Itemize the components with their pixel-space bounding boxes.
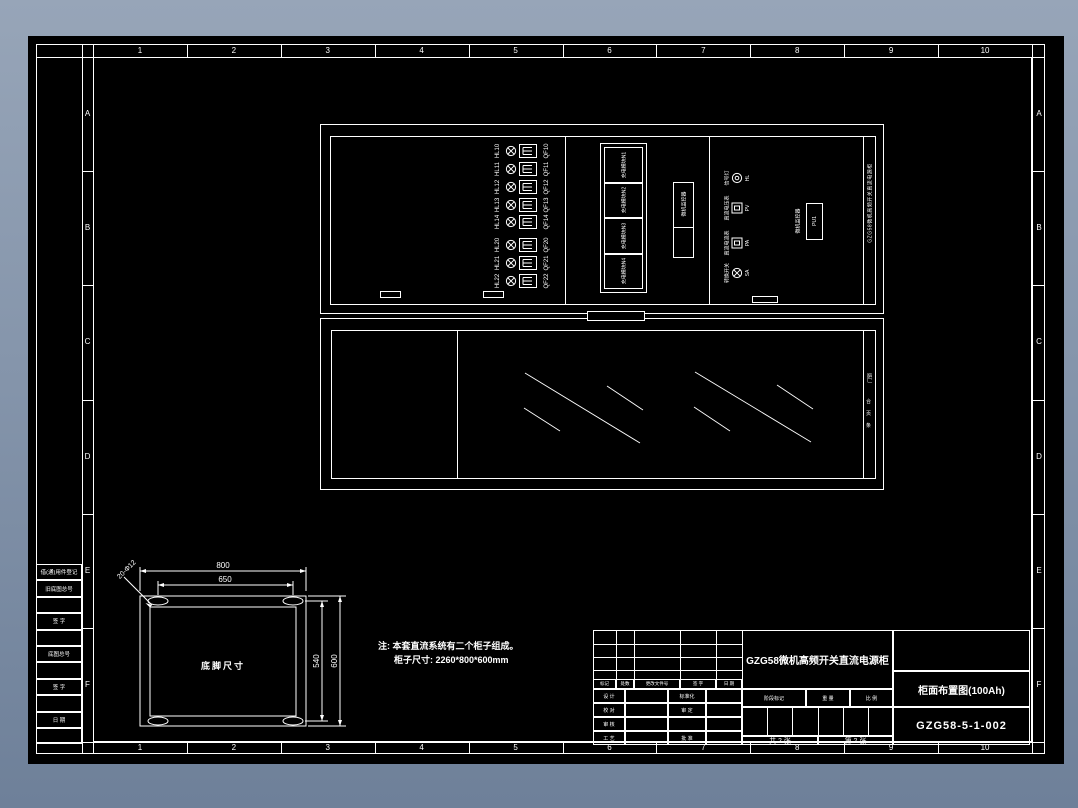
instrument-label: 直流电流表 xyxy=(724,230,731,255)
ruler-col-label-top: 6 xyxy=(563,44,657,57)
instrument-tag: HL xyxy=(745,175,751,181)
sign-blank-cell xyxy=(625,717,668,731)
lamp-icon xyxy=(505,199,517,211)
lamp-label: HL11 xyxy=(495,162,501,176)
margin-strip-row xyxy=(36,630,82,646)
svg-text:650: 650 xyxy=(218,575,232,584)
left-panel-handle-1 xyxy=(380,291,401,298)
margin-strip-row: 签 字 xyxy=(36,613,82,629)
drawing-title-cell: 柜面布置图(100Ah) xyxy=(893,671,1030,707)
breaker-icon xyxy=(519,162,537,176)
lamp-icon xyxy=(505,257,517,269)
revision-header-cell: 日 期 xyxy=(716,679,742,689)
meter-icon xyxy=(731,237,743,249)
tall-row xyxy=(742,707,893,736)
ruler-col-tick-top xyxy=(93,44,94,57)
revision-header-cell: 处数 xyxy=(616,679,634,689)
margin-strip-row xyxy=(36,597,82,613)
left-panel-handle-2 xyxy=(483,291,504,298)
ruler-col-tick-top xyxy=(1032,44,1033,57)
sign-mid-cell: 标准化 xyxy=(668,689,706,703)
breaker-label: QF12 xyxy=(544,179,550,194)
ruler-row-tick-right xyxy=(1032,742,1045,743)
lower-door-divider xyxy=(457,331,458,478)
svg-text:600: 600 xyxy=(330,654,339,668)
note-line-1: 注: 本套直流系统有二个柜子组成。 xyxy=(378,639,519,652)
ruler-col-tick-top xyxy=(938,44,939,57)
ruler-col-label-bottom: 5 xyxy=(469,742,563,754)
nameplate xyxy=(587,311,645,321)
ruler-col-tick-top xyxy=(187,44,188,57)
lamp-label: HL14 xyxy=(495,215,501,229)
breaker-label: QF10 xyxy=(544,143,550,158)
margin-strip-row xyxy=(36,662,82,678)
sign-role-cell: 审 核 xyxy=(593,717,625,731)
ruler-col-tick-top xyxy=(844,44,845,57)
margin-strip-row xyxy=(36,695,82,711)
lamp-icon xyxy=(505,239,517,251)
ruler-row-label-right: D xyxy=(1033,400,1045,514)
instrument-tag: SA xyxy=(745,270,751,277)
sign-mid-cell: 批 准 xyxy=(668,731,706,745)
ruler-row-tick-right xyxy=(1032,171,1045,172)
upper-divider-2 xyxy=(709,137,710,304)
ruler-row-label-right: F xyxy=(1033,628,1045,742)
door-side-mark: 合 xyxy=(866,398,871,405)
ruler-row-tick-left xyxy=(82,285,93,286)
ruler-col-tick-bottom xyxy=(1032,742,1033,754)
ruler-col-label-top: 7 xyxy=(656,44,750,57)
right-panel-handle xyxy=(752,296,778,303)
breaker-label: QF21 xyxy=(544,255,550,270)
revision-header-cell: 更改文件号 xyxy=(634,679,680,689)
ruler-col-tick-bottom xyxy=(93,742,94,754)
sign-blank-cell xyxy=(625,731,668,745)
sign-blank-cell xyxy=(625,689,668,703)
cad-viewport[interactable]: 1122334455667788991010AABBCCDDEEFF 借(通)用… xyxy=(0,0,1078,808)
ruler-row-tick-left xyxy=(82,57,93,58)
ruler-row-label-left: A xyxy=(82,57,93,171)
ruler-row-label-left: E xyxy=(82,514,93,628)
module-monitor-label: 微机监控器 xyxy=(680,191,687,216)
module-monitor-divider xyxy=(673,227,694,228)
sign-role-cell: 工 艺 xyxy=(593,731,625,745)
breaker-label: QF11 xyxy=(544,162,550,177)
breaker-label: QF14 xyxy=(544,214,550,229)
logo-cell xyxy=(893,630,1030,671)
indicator-lamp-icon xyxy=(731,172,743,184)
ruler-row-label-right: A xyxy=(1033,57,1045,171)
breaker-label: QF22 xyxy=(544,273,550,288)
ruler-col-tick-top xyxy=(750,44,751,57)
door-side-mark: 条 xyxy=(866,422,871,429)
cabinet-side-label: GZG58微机高频开关直流电源柜 xyxy=(866,163,873,242)
indicator-lamp-icon xyxy=(731,267,743,279)
ruler-col-tick-top xyxy=(281,44,282,57)
margin-strip-row: 签 字 xyxy=(36,679,82,695)
foot-detail-drawing: 800 650 540 600 20-Φ12 底脚尺寸 xyxy=(100,555,360,745)
instrument-label: 转换开关 xyxy=(724,263,731,283)
instrument-tag: PA xyxy=(745,240,751,246)
revision-divider xyxy=(716,630,717,679)
ruler-row-label-right: C xyxy=(1033,285,1045,399)
drawing-number-cell: GZG58-5-1-002 xyxy=(893,707,1030,745)
ruler-col-label-top: 3 xyxy=(281,44,375,57)
margin-strip-row: 借(通)用件登记 xyxy=(36,564,82,580)
ruler-row-tick-right xyxy=(1032,285,1045,286)
title-block: GZG58微机高频开关直流电源柜 阶段标记重 量比 例 共 2 张 第 2 张 … xyxy=(593,630,1030,745)
margin-strip-row: 底图总号 xyxy=(36,646,82,662)
breaker-icon xyxy=(519,215,537,229)
ruler-row-label-right: B xyxy=(1033,171,1045,285)
sign-blank-cell-2 xyxy=(706,689,742,703)
product-title-cell: GZG58微机高频开关直流电源柜 xyxy=(742,630,893,689)
ruler-col-label-top: 8 xyxy=(750,44,844,57)
revision-header-cell: 签 字 xyxy=(680,679,716,689)
ruler-row-label-left: B xyxy=(82,171,93,285)
stage-cell: 重 量 xyxy=(806,689,850,707)
glass-hatch xyxy=(460,330,880,479)
breaker-label: QF13 xyxy=(544,197,550,212)
lamp-label: HL20 xyxy=(495,238,501,252)
charge-module-label: 充电模块N2 xyxy=(620,187,627,213)
lamp-label: HL22 xyxy=(495,274,501,288)
svg-text:540: 540 xyxy=(312,654,321,668)
breaker-label: QF20 xyxy=(544,237,550,252)
ruler-col-label-bottom: 4 xyxy=(375,742,469,754)
top-band-line xyxy=(36,57,1045,58)
lamp-label: HL13 xyxy=(495,198,501,212)
sign-blank-cell xyxy=(625,703,668,717)
ruler-col-tick-top xyxy=(469,44,470,57)
breaker-icon xyxy=(519,180,537,194)
revision-divider xyxy=(634,630,635,679)
stage-cell: 阶段标记 xyxy=(742,689,806,707)
ruler-row-tick-left xyxy=(82,171,93,172)
ruler-col-label-top: 4 xyxy=(375,44,469,57)
breaker-icon xyxy=(519,198,537,212)
ruler-col-tick-top xyxy=(656,44,657,57)
sign-blank-cell-2 xyxy=(706,703,742,717)
instrument-label: 直流电压表 xyxy=(724,195,731,220)
svg-text:底脚尺寸: 底脚尺寸 xyxy=(201,660,245,671)
ruler-col-tick-bottom xyxy=(563,742,564,754)
lamp-label: HL12 xyxy=(495,180,501,194)
breaker-icon xyxy=(519,274,537,288)
lamp-icon xyxy=(505,275,517,287)
margin-strip-row: 日 期 xyxy=(36,712,82,728)
margin-strip-row: 旧底图总号 xyxy=(36,580,82,596)
door-side-word: 门锁 xyxy=(866,373,873,383)
foot-dimension-detail: 800 650 540 600 20-Φ12 底脚尺寸 xyxy=(100,555,360,745)
ruler-col-label-top: 1 xyxy=(93,44,187,57)
ruler-col-tick-bottom xyxy=(469,742,470,754)
lamp-label: HL10 xyxy=(495,144,501,158)
sign-mid-cell xyxy=(668,717,706,731)
ruler-row-tick-left xyxy=(82,400,93,401)
ruler-col-tick-top xyxy=(375,44,376,57)
stage-cell: 比 例 xyxy=(850,689,893,707)
ruler-row-tick-right xyxy=(1032,628,1045,629)
svg-text:20-Φ12: 20-Φ12 xyxy=(116,559,138,581)
ruler-row-label-left: C xyxy=(82,285,93,399)
ruler-row-tick-right xyxy=(1032,57,1045,58)
breaker-icon xyxy=(519,256,537,270)
svg-text:800: 800 xyxy=(216,561,230,570)
ruler-col-tick-top xyxy=(563,44,564,57)
instrument-label: 信号灯 xyxy=(724,170,731,185)
charge-module-label: 充电模块N3 xyxy=(620,223,627,249)
ruler-row-tick-right xyxy=(1032,400,1045,401)
sheet-count-cell: 共 2 张 xyxy=(742,736,818,745)
note-line-2: 柜子尺寸: 2260*800*600mm xyxy=(394,653,509,666)
lamp-icon xyxy=(505,181,517,193)
sign-role-cell: 设 计 xyxy=(593,689,625,703)
lamp-icon xyxy=(505,163,517,175)
lamp-label: HL21 xyxy=(495,256,501,270)
monitor-unit-tag: PU1 xyxy=(812,216,818,226)
sign-mid-cell: 审 定 xyxy=(668,703,706,717)
revision-divider xyxy=(616,630,617,679)
ruler-row-label-left: D xyxy=(82,400,93,514)
ruler-col-label-top: 10 xyxy=(938,44,1032,57)
ruler-col-tick-bottom xyxy=(375,742,376,754)
ruler-row-label-left: F xyxy=(82,628,93,742)
breaker-icon xyxy=(519,144,537,158)
ruler-row-tick-left xyxy=(82,628,93,629)
ruler-row-tick-left xyxy=(82,742,93,743)
instrument-tag: PV xyxy=(745,205,751,212)
upper-divider-1 xyxy=(565,137,566,304)
meter-icon xyxy=(731,202,743,214)
breaker-icon xyxy=(519,238,537,252)
ruler-col-label-top: 9 xyxy=(844,44,938,57)
ruler-row-tick-right xyxy=(1032,514,1045,515)
revision-divider xyxy=(680,630,681,679)
revision-header-cell: 标记 xyxy=(593,679,616,689)
sheet-index-cell: 第 2 张 xyxy=(818,736,893,745)
sign-role-cell: 校 对 xyxy=(593,703,625,717)
ruler-row-tick-left xyxy=(82,514,93,515)
ruler-col-label-top: 5 xyxy=(469,44,563,57)
ruler-row-label-right: E xyxy=(1033,514,1045,628)
door-side-mark: 页 xyxy=(866,410,871,417)
charge-module-label: 充电模块N1 xyxy=(620,152,627,178)
sign-blank-cell-2 xyxy=(706,717,742,731)
sign-blank-cell-2 xyxy=(706,731,742,745)
charge-module-label: 充电模块N4 xyxy=(620,258,627,284)
monitor-unit-label: 微机监控器 xyxy=(795,208,802,233)
ruler-col-label-top: 2 xyxy=(187,44,281,57)
lamp-icon xyxy=(505,145,517,157)
margin-strip-row xyxy=(36,728,82,744)
lamp-icon xyxy=(505,216,517,228)
upper-side-strip-line xyxy=(863,137,864,304)
